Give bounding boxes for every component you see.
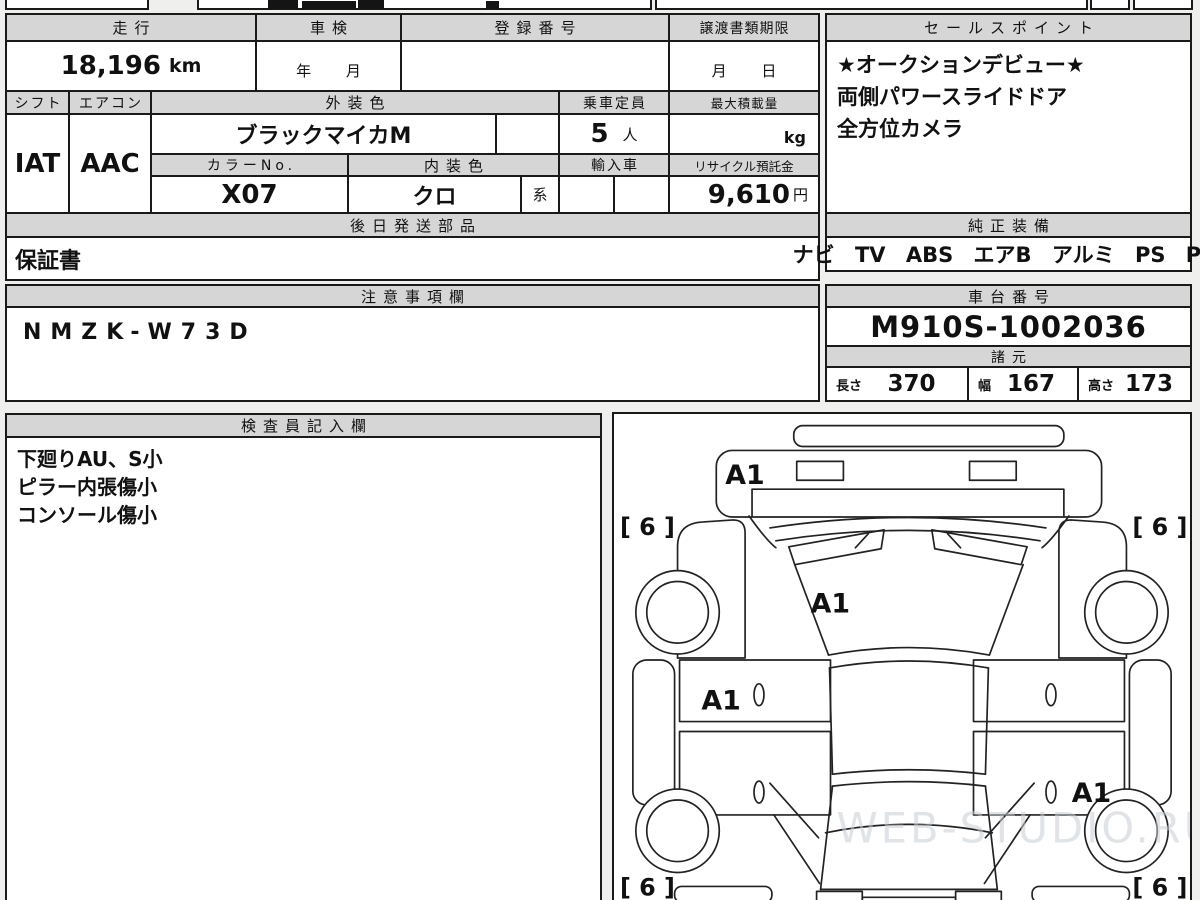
inspector-note-line: 下廻りAU、S小: [17, 445, 590, 473]
specs-header: 諸元: [825, 345, 1192, 368]
import-car-subcell: [613, 175, 670, 214]
spec-width-value: 167: [991, 371, 1071, 397]
mileage-header: 走行: [5, 13, 257, 42]
spec-length-value: 370: [862, 371, 961, 397]
color-no-header: カラーNo.: [150, 153, 349, 177]
shift-header: シフト: [5, 90, 70, 115]
inspector-notes: 下廻りAU、S小 ピラー内張傷小 コンソール傷小: [5, 436, 602, 900]
tire-mark-rear-left: [ 6 ]: [620, 873, 675, 900]
interior-color-suffix: 系: [520, 175, 560, 214]
recycle-deposit-unit: 円: [793, 184, 808, 205]
sales-point-line: 全方位カメラ: [837, 113, 1180, 145]
front-bumper-step: [752, 489, 1064, 516]
chassis-number-value: M910S-1002036: [825, 306, 1192, 347]
interior-color-header: 内装色: [347, 153, 560, 177]
chassis-number-header: 車台番号: [825, 284, 1192, 308]
c-pillar-left: [770, 783, 819, 838]
spec-length-label: 長さ: [836, 375, 862, 394]
door-handle: [754, 684, 764, 706]
roof-rear: [832, 770, 985, 774]
tire-mark-front-left: [ 6 ]: [620, 513, 675, 541]
clipped-text-fragment: [486, 1, 499, 9]
damage-mark-windshield: A1: [811, 588, 850, 619]
bumper-inset-right: [970, 461, 1017, 480]
car-diagram: WEB-STUDIO.RU A1 A1 A1 A1 [ 6 ] [ 6 ] [ …: [614, 414, 1190, 900]
roof-rail: [794, 426, 1064, 447]
inspector-header: 検査員記入欄: [5, 413, 602, 438]
spec-width-label: 幅: [978, 375, 991, 394]
capacity-value: 5 人: [558, 113, 670, 155]
spec-height-value: 173: [1114, 371, 1184, 397]
tire-mark-front-right: [ 6 ]: [1132, 513, 1187, 541]
capacity-header: 乗車定員: [558, 90, 670, 115]
watermark: WEB-STUDIO.RU: [836, 804, 1190, 853]
spec-height: 高さ 173: [1077, 366, 1192, 402]
max-load-header: 最大積載量: [668, 90, 820, 115]
windshield-base: [829, 648, 990, 655]
mileage-unit: km: [169, 55, 201, 77]
rear-bumper-block: [956, 891, 1002, 900]
exterior-color-subcell: [495, 113, 560, 155]
inspection-header: 車検: [255, 13, 402, 42]
c-pillar-left: [774, 815, 820, 884]
front-bumper: [716, 450, 1101, 517]
equipment-header: 純正装備: [825, 212, 1192, 238]
wiper-blade: [855, 534, 868, 548]
caution-value: NMZK-W73D: [5, 306, 820, 402]
capacity-unit: 人: [623, 124, 638, 145]
max-load-value: kg: [668, 113, 820, 155]
clipped-top-cell: [655, 0, 1088, 10]
color-no-value: X07: [150, 175, 349, 214]
recycle-deposit-header: リサイクル預託金: [668, 153, 820, 177]
mileage-number: 18,196: [61, 51, 161, 81]
inspection-value: 年 月: [255, 40, 402, 92]
rear-bumper-block: [817, 891, 863, 900]
tire-mark-rear-right: [ 6 ]: [1132, 873, 1187, 900]
aircon-value: AAC: [68, 113, 152, 214]
door-handle: [1046, 684, 1056, 706]
clipped-text-fragment: [268, 0, 298, 9]
door-handle: [1046, 781, 1056, 803]
inspector-note-line: コンソール傷小: [17, 501, 590, 529]
roof-front: [830, 661, 989, 668]
clipped-text-fragment: [302, 1, 356, 9]
equipment-value: ナビ TV ABS エアB アルミ PS PW: [825, 236, 1192, 272]
registration-number-header: 登録番号: [400, 13, 670, 42]
sales-points-list: ★オークションデビュー★ 両側パワースライドドア 全方位カメラ: [825, 40, 1192, 214]
recycle-deposit-value: 9,610 円: [668, 175, 820, 214]
clipped-top-cell: [5, 0, 149, 10]
hood-edge-left: [749, 516, 776, 548]
wiper-right: [932, 530, 1027, 565]
clipped-text-fragment: [358, 0, 384, 9]
sales-points-header: セールスポイント: [825, 13, 1192, 42]
spec-width: 幅 167: [967, 366, 1079, 402]
import-car-header: 輸入車: [558, 153, 670, 177]
mileage-value: 18,196 km: [5, 40, 257, 92]
wiper-blade: [948, 534, 961, 548]
door-handle: [754, 781, 764, 803]
damage-mark-right-rear-door: A1: [1072, 778, 1111, 809]
transfer-deadline-value: 月 日: [668, 40, 820, 92]
car-diagram-panel: WEB-STUDIO.RU A1 A1 A1 A1 [ 6 ] [ 6 ] [ …: [612, 412, 1192, 900]
caution-header: 注意事項欄: [5, 284, 820, 308]
rear-quarter-right: [1032, 886, 1129, 900]
damage-mark-front-bumper: A1: [725, 460, 764, 491]
inspector-note-line: ピラー内張傷小: [17, 473, 590, 501]
front-door-right: [974, 660, 1125, 722]
aircon-header: エアコン: [68, 90, 152, 115]
cowl-line: [776, 530, 1040, 540]
damage-mark-left-front-door: A1: [701, 686, 740, 717]
sales-point-line: ★オークションデビュー★: [837, 49, 1180, 81]
side-sill-left: [633, 660, 675, 805]
clipped-top-cell: [197, 0, 652, 10]
later-parts-value: 保証書: [5, 236, 820, 281]
transfer-deadline-header: 譲渡書類期限: [668, 13, 820, 42]
later-parts-header: 後日発送部品: [5, 212, 820, 238]
cowl-line: [770, 517, 1046, 527]
import-car-subcell: [558, 175, 615, 214]
capacity-number: 5: [590, 119, 608, 149]
shift-value: IAT: [5, 113, 70, 214]
wheel-front-left-inner: [647, 582, 709, 644]
rear-window-top: [832, 782, 985, 786]
wheel-rear-left-inner: [647, 800, 709, 862]
exterior-color-header: 外装色: [150, 90, 560, 115]
clipped-top-cell: [1133, 0, 1193, 10]
side-sill-right: [1129, 660, 1171, 805]
exterior-color-value: ブラックマイカM: [150, 113, 497, 155]
interior-color-value: クロ: [347, 175, 522, 214]
bumper-inset-left: [797, 461, 844, 480]
spec-length: 長さ 370: [825, 366, 969, 402]
recycle-deposit-number: 9,610: [708, 180, 790, 210]
wheel-front-right-inner: [1096, 582, 1158, 644]
clipped-top-cell: [1090, 0, 1130, 10]
registration-number-value: [400, 40, 670, 92]
spec-height-label: 高さ: [1088, 375, 1114, 394]
sales-point-line: 両側パワースライドドア: [837, 81, 1180, 113]
rear-quarter-left: [675, 886, 772, 900]
wiper-left: [789, 530, 884, 565]
windshield-side: [989, 565, 1023, 655]
auction-sheet: 走行 車検 登録番号 譲渡書類期限 18,196 km 年 月 月 日 シフト …: [0, 0, 1200, 900]
